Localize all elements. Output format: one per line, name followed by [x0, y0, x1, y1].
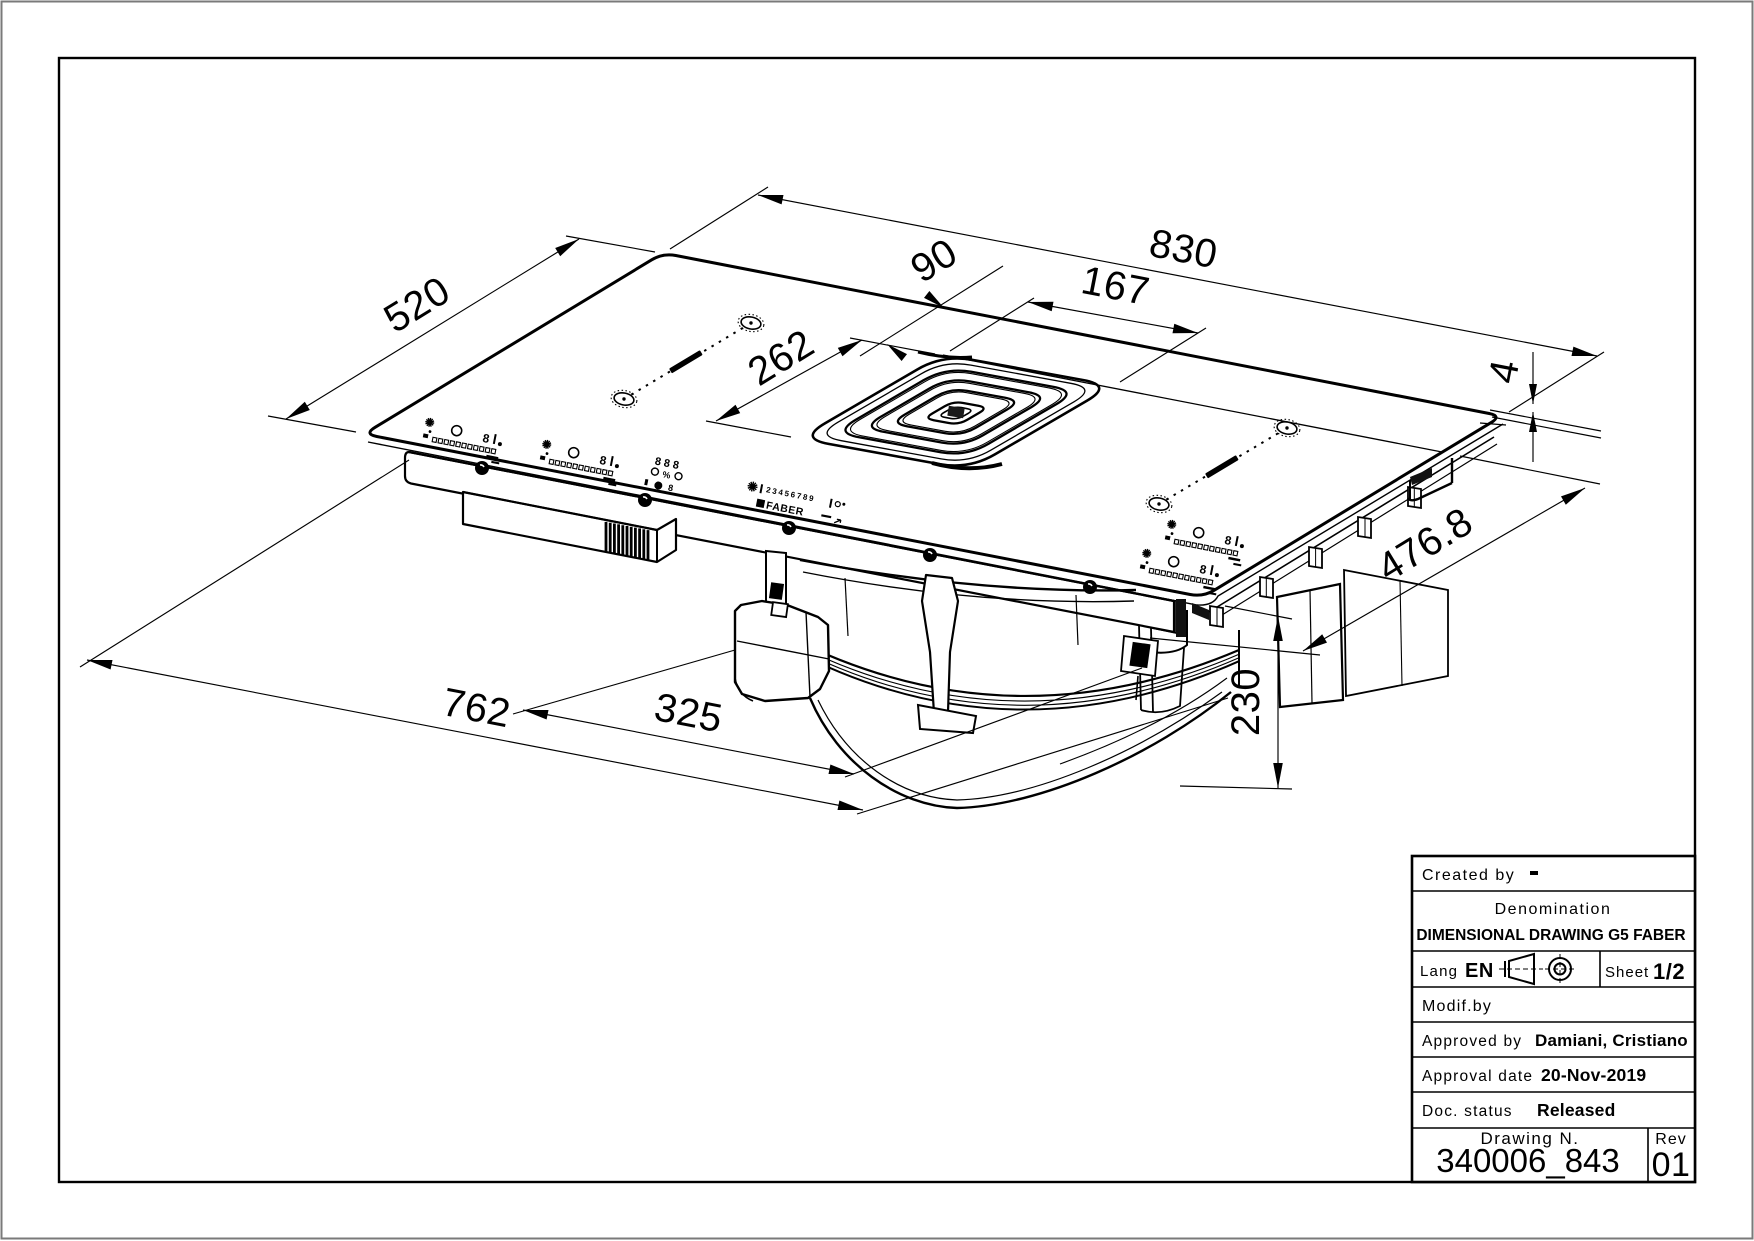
svg-text:Approved by: Approved by [1422, 1033, 1522, 1050]
svg-text:230: 230 [1224, 668, 1268, 736]
svg-text:Denomination: Denomination [1495, 901, 1612, 918]
svg-text:EN: EN [1465, 960, 1494, 982]
svg-text:Approval date: Approval date [1422, 1068, 1533, 1085]
svg-text:Modif.by: Modif.by [1422, 998, 1492, 1015]
svg-text:DIMENSIONAL DRAWING G5 FABER: DIMENSIONAL DRAWING G5 FABER [1416, 927, 1685, 944]
svg-text:20-Nov-2019: 20-Nov-2019 [1541, 1065, 1646, 1085]
svg-text:Created by: Created by [1422, 867, 1515, 884]
svg-text:Lang: Lang [1420, 963, 1458, 980]
svg-text:Released: Released [1537, 1100, 1615, 1120]
svg-text:340006_843: 340006_843 [1436, 1142, 1620, 1179]
svg-text:01: 01 [1652, 1146, 1691, 1184]
svg-text:Damiani, Cristiano: Damiani, Cristiano [1535, 1031, 1688, 1050]
svg-text:1/2: 1/2 [1653, 959, 1685, 984]
svg-text:Sheet: Sheet [1605, 964, 1649, 981]
svg-text:Doc. status: Doc. status [1422, 1103, 1513, 1120]
